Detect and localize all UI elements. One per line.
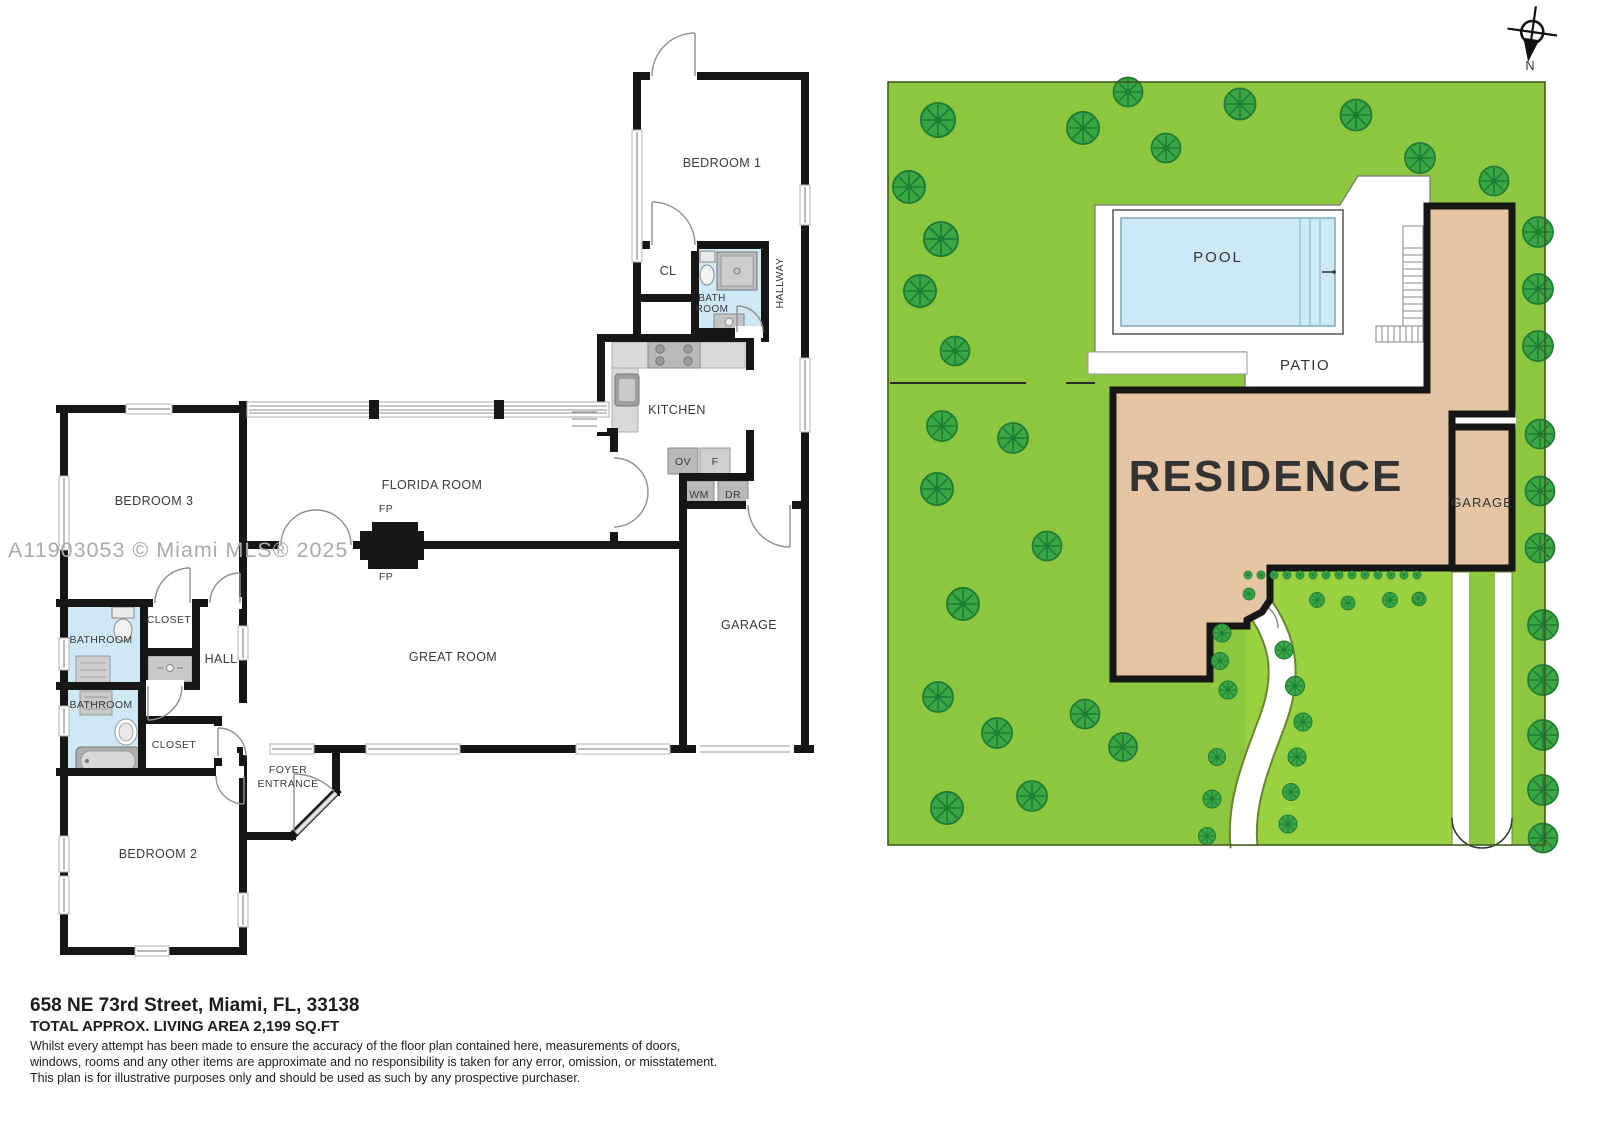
label-foyer-1: FOYER bbox=[269, 764, 307, 776]
tree-icon bbox=[1526, 420, 1555, 449]
tree-icon bbox=[904, 275, 936, 307]
tree-icon bbox=[1526, 477, 1555, 506]
label-site-garage: GARAGE bbox=[1451, 495, 1513, 510]
tree-icon bbox=[1361, 571, 1369, 579]
label-closet-bottom: CLOSET bbox=[152, 739, 197, 751]
tree-icon bbox=[1310, 593, 1325, 608]
site-plan: POOL PATIO RESIDENCE GARAGE bbox=[888, 78, 1558, 853]
tree-icon bbox=[1383, 593, 1398, 608]
tree-icon bbox=[947, 588, 979, 620]
driveway bbox=[1452, 572, 1512, 848]
footer-disclaimer-3: This plan is for illustrative purposes o… bbox=[30, 1071, 580, 1085]
tree-icon bbox=[1413, 571, 1421, 579]
label-residence: RESIDENCE bbox=[1129, 452, 1404, 501]
label-bath-2: ROOM bbox=[696, 304, 729, 315]
tree-icon bbox=[1374, 571, 1382, 579]
label-patio: PATIO bbox=[1280, 357, 1330, 374]
tree-icon bbox=[893, 171, 925, 203]
tree-icon bbox=[1529, 824, 1558, 853]
label-bedroom1: BEDROOM 1 bbox=[683, 156, 762, 170]
footer: 658 NE 73rd Street, Miami, FL, 33138 TOT… bbox=[29, 995, 717, 1085]
label-foyer-2: ENTRANCE bbox=[258, 778, 319, 790]
tree-icon bbox=[1275, 641, 1293, 659]
tree-icon bbox=[1270, 571, 1278, 579]
tree-icon bbox=[1152, 134, 1181, 163]
tree-icon bbox=[982, 718, 1012, 748]
label-great-room: GREAT ROOM bbox=[409, 650, 497, 664]
footer-disclaimer-1: Whilst every attempt has been made to en… bbox=[30, 1039, 680, 1053]
label-florida-room: FLORIDA ROOM bbox=[382, 478, 483, 492]
tree-icon bbox=[1212, 653, 1229, 670]
label-closet-top: CLOSET bbox=[147, 614, 192, 626]
tree-icon bbox=[931, 792, 963, 824]
tree-icon bbox=[998, 423, 1028, 453]
tree-icon bbox=[1294, 713, 1312, 731]
tree-icon bbox=[1219, 681, 1237, 699]
tree-icon bbox=[1341, 100, 1372, 131]
pool bbox=[1113, 210, 1343, 334]
tree-icon bbox=[1480, 167, 1509, 196]
label-bedroom3: BEDROOM 3 bbox=[115, 494, 194, 508]
plan-svg: POOL PATIO RESIDENCE GARAGE N bbox=[0, 0, 1600, 1121]
tree-icon bbox=[1209, 749, 1226, 766]
tree-icon bbox=[1296, 571, 1304, 579]
tree-icon bbox=[1523, 331, 1553, 361]
compass bbox=[1503, 3, 1560, 65]
tree-icon bbox=[1528, 775, 1558, 805]
tree-icon bbox=[924, 222, 958, 256]
tree-icon bbox=[1528, 720, 1558, 750]
floor-plan: BEDROOM 1 CL BATH ROOM HALLWAY KITCHEN O… bbox=[59, 33, 810, 956]
label-dr: DR bbox=[725, 489, 741, 501]
tree-icon bbox=[923, 682, 953, 712]
tree-icon bbox=[1033, 532, 1062, 561]
tree-icon bbox=[1243, 588, 1255, 600]
tree-icon bbox=[1335, 571, 1343, 579]
tree-icon bbox=[1244, 571, 1252, 579]
label-wm: WM bbox=[689, 489, 708, 501]
label-garage: GARAGE bbox=[721, 618, 777, 632]
tree-icon bbox=[1283, 784, 1300, 801]
label-bedroom2: BEDROOM 2 bbox=[119, 847, 198, 861]
tree-icon bbox=[921, 473, 953, 505]
tree-icon bbox=[1348, 571, 1356, 579]
tree-icon bbox=[1213, 624, 1231, 642]
tree-icon bbox=[1283, 571, 1291, 579]
footer-disclaimer-2: windows, rooms and any other items are a… bbox=[29, 1055, 717, 1069]
label-f: F bbox=[712, 456, 719, 468]
tree-icon bbox=[1400, 571, 1408, 579]
label-fp-bottom: FP bbox=[379, 571, 393, 583]
tree-icon bbox=[1225, 89, 1256, 120]
tree-icon bbox=[1199, 828, 1216, 845]
tree-icon bbox=[1528, 665, 1558, 695]
tree-icon bbox=[1279, 815, 1297, 833]
footer-area: TOTAL APPROX. LIVING AREA 2,199 SQ.FT bbox=[30, 1018, 339, 1035]
label-fp-top: FP bbox=[379, 503, 393, 515]
label-kitchen: KITCHEN bbox=[648, 403, 706, 417]
label-pool: POOL bbox=[1193, 249, 1243, 266]
florida-window-band bbox=[247, 400, 609, 419]
label-bath-1: BATH bbox=[698, 293, 726, 304]
watermark: A11903053 © Miami MLS® 2025 bbox=[8, 538, 348, 562]
hall-vanity-icon bbox=[148, 656, 192, 682]
footer-address: 658 NE 73rd Street, Miami, FL, 33138 bbox=[30, 995, 360, 1016]
tree-icon bbox=[941, 337, 970, 366]
label-ov: OV bbox=[675, 456, 691, 468]
tree-icon bbox=[1341, 596, 1355, 610]
tree-icon bbox=[1017, 781, 1047, 811]
walkway bbox=[1088, 352, 1247, 374]
tree-icon bbox=[1071, 700, 1100, 729]
vanity-shelf-icon bbox=[76, 656, 110, 683]
fireplace-icon bbox=[360, 522, 424, 569]
tree-icon bbox=[1286, 677, 1305, 696]
tree-icon bbox=[1528, 610, 1558, 640]
shower-icon bbox=[717, 252, 757, 290]
tree-icon bbox=[1257, 571, 1265, 579]
label-bathroom-bottom: BATHROOM bbox=[69, 699, 132, 711]
tree-icon bbox=[927, 411, 957, 441]
tree-icon bbox=[1523, 274, 1553, 304]
label-bathroom-top: BATHROOM bbox=[69, 634, 132, 646]
tree-icon bbox=[1387, 571, 1395, 579]
tree-icon bbox=[1203, 790, 1221, 808]
floorplan-page: POOL PATIO RESIDENCE GARAGE N bbox=[0, 0, 1600, 1121]
label-hallway: HALLWAY bbox=[774, 257, 786, 308]
tree-icon bbox=[1288, 748, 1306, 766]
tree-icon bbox=[1109, 733, 1137, 761]
stove-icon bbox=[648, 342, 700, 368]
tree-icon bbox=[1309, 571, 1317, 579]
label-cl: CL bbox=[660, 264, 677, 278]
tree-icon bbox=[1067, 112, 1099, 144]
tree-icon bbox=[1523, 217, 1553, 247]
kitchen-sink-icon bbox=[615, 374, 639, 406]
label-hall: HALL bbox=[205, 652, 238, 666]
tree-icon bbox=[1322, 571, 1330, 579]
tree-icon bbox=[1413, 593, 1424, 604]
tree-icon bbox=[921, 103, 955, 137]
tree-icon bbox=[1526, 534, 1555, 563]
label-north: N bbox=[1525, 59, 1534, 73]
tree-icon bbox=[1405, 143, 1435, 173]
